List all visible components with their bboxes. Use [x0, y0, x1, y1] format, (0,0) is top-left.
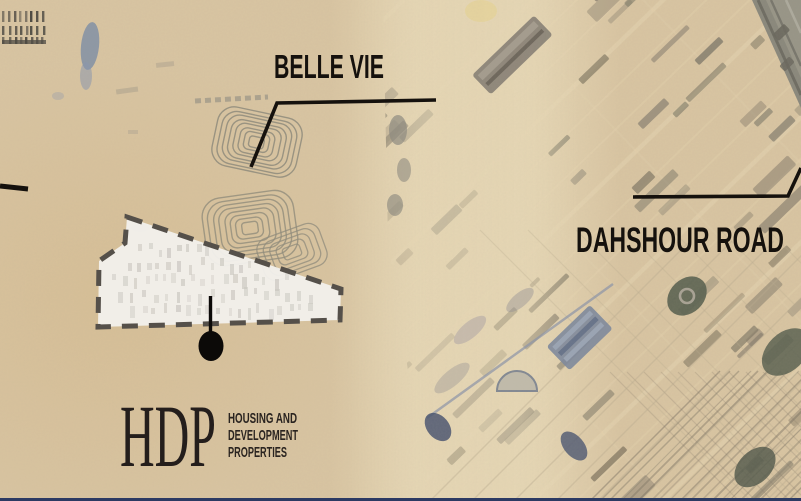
svg-text:DEVELOPMENT: DEVELOPMENT	[228, 427, 298, 444]
svg-text:HOUSING AND: HOUSING AND	[228, 410, 297, 427]
svg-text:PROPERTIES: PROPERTIES	[228, 444, 287, 461]
svg-text:BELLE VIE: BELLE VIE	[274, 48, 384, 85]
svg-text:DAHSHOUR ROAD: DAHSHOUR ROAD	[576, 221, 784, 260]
svg-text:HDP: HDP	[120, 388, 216, 486]
